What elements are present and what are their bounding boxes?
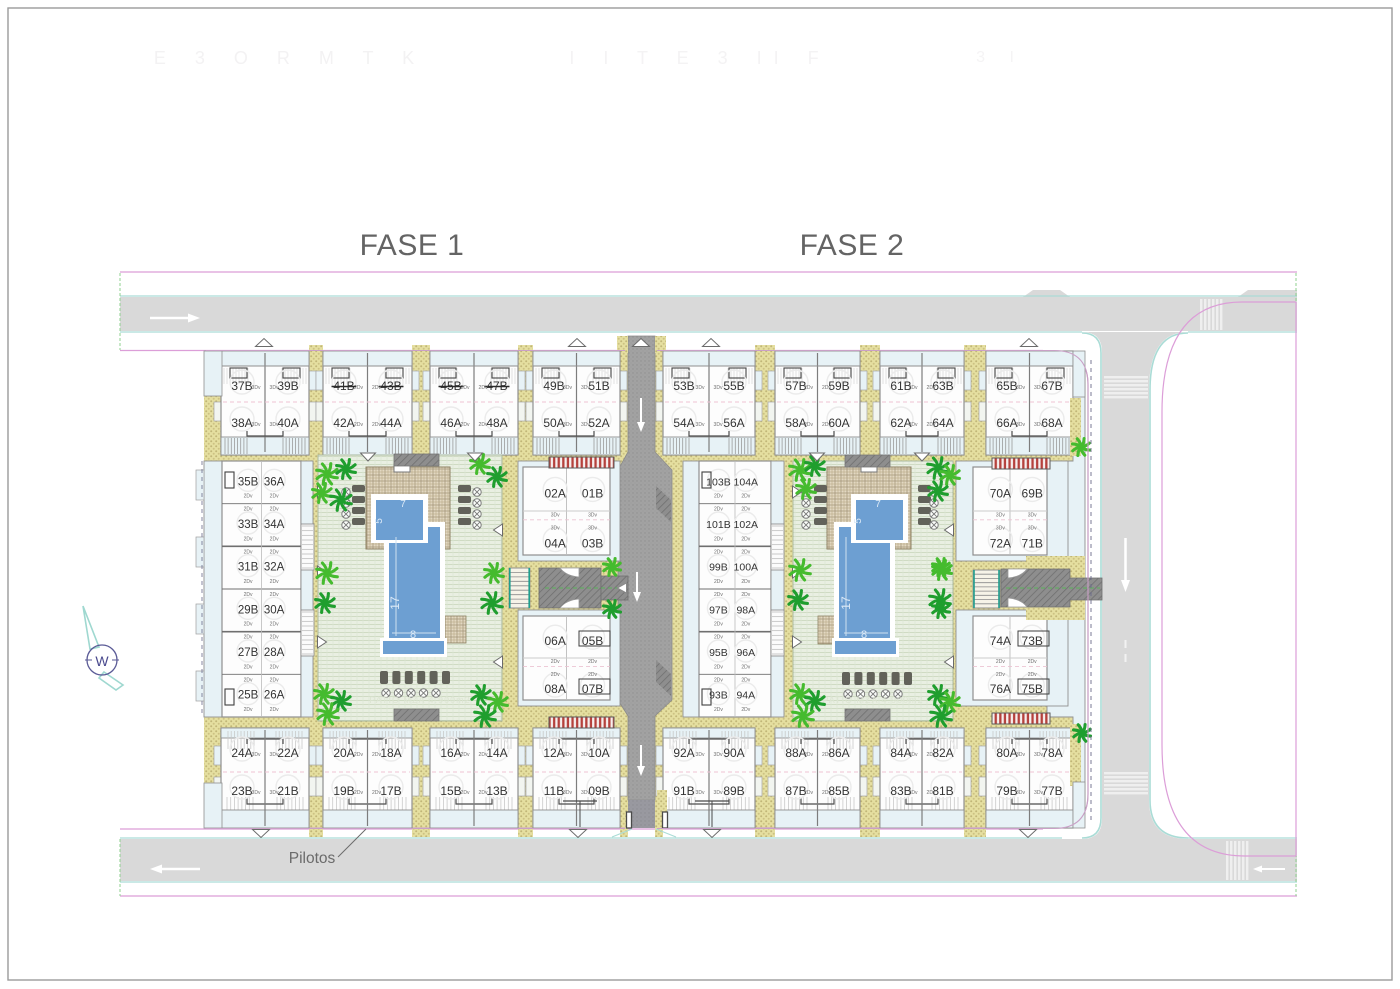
svg-text:2Dv: 2Dv <box>551 659 560 665</box>
svg-text:2Dv: 2Dv <box>354 385 363 391</box>
svg-text:42A: 42A <box>333 416 354 430</box>
svg-text:2Dv: 2Dv <box>270 494 279 500</box>
svg-text:2Dv: 2Dv <box>741 707 750 713</box>
svg-text:3Dv: 3Dv <box>696 752 705 758</box>
svg-text:3Dv: 3Dv <box>714 385 723 391</box>
svg-text:2Dv: 2Dv <box>927 790 936 796</box>
svg-text:81B: 81B <box>932 784 953 798</box>
svg-text:3Dv: 3Dv <box>996 525 1005 531</box>
svg-text:3Dv: 3Dv <box>563 752 572 758</box>
svg-text:3Dv: 3Dv <box>563 385 572 391</box>
svg-text:2Dv: 2Dv <box>714 622 723 628</box>
svg-text:3Dv: 3Dv <box>270 385 279 391</box>
svg-text:2Dv: 2Dv <box>741 579 750 585</box>
svg-text:63B: 63B <box>932 379 953 393</box>
svg-text:19B: 19B <box>333 784 354 798</box>
svg-text:30A: 30A <box>264 604 285 616</box>
svg-text:86A: 86A <box>828 746 849 760</box>
svg-text:3Dv: 3Dv <box>581 752 590 758</box>
svg-text:2Dv: 2Dv <box>804 422 813 428</box>
svg-text:80A: 80A <box>996 746 1017 760</box>
svg-text:3Dv: 3Dv <box>581 790 590 796</box>
svg-text:11B: 11B <box>544 784 564 798</box>
svg-text:3Dv: 3Dv <box>1034 752 1043 758</box>
svg-text:2Dv: 2Dv <box>479 752 488 758</box>
svg-text:08A: 08A <box>545 682 566 696</box>
svg-text:17: 17 <box>839 596 853 610</box>
svg-text:3Dv: 3Dv <box>1034 422 1043 428</box>
svg-text:28A: 28A <box>264 647 285 659</box>
svg-text:3Dv: 3Dv <box>563 790 572 796</box>
svg-text:3Dv: 3Dv <box>270 790 279 796</box>
svg-text:3Dv: 3Dv <box>996 512 1005 518</box>
svg-text:76A: 76A <box>990 682 1011 696</box>
svg-text:2Dv: 2Dv <box>551 672 560 678</box>
svg-text:3Dv: 3Dv <box>1028 512 1037 518</box>
svg-text:24A: 24A <box>231 746 252 760</box>
svg-text:3Dv: 3Dv <box>252 790 261 796</box>
svg-text:34A: 34A <box>264 519 285 531</box>
svg-text:67B: 67B <box>1041 379 1062 393</box>
svg-text:69B: 69B <box>1022 486 1043 500</box>
svg-text:2Dv: 2Dv <box>461 385 470 391</box>
svg-text:97B: 97B <box>709 604 728 616</box>
svg-text:3Dv: 3Dv <box>1016 385 1025 391</box>
svg-text:7: 7 <box>875 499 881 510</box>
svg-text:72A: 72A <box>990 537 1011 551</box>
svg-text:2Dv: 2Dv <box>1028 672 1037 678</box>
svg-text:8: 8 <box>410 629 416 641</box>
svg-text:2Dv: 2Dv <box>804 790 813 796</box>
svg-text:2Dv: 2Dv <box>354 790 363 796</box>
svg-text:2Dv: 2Dv <box>804 752 813 758</box>
svg-text:5: 5 <box>853 518 864 524</box>
svg-text:48A: 48A <box>486 416 507 430</box>
svg-text:17B: 17B <box>380 784 401 798</box>
svg-text:2Dv: 2Dv <box>479 422 488 428</box>
svg-text:104A: 104A <box>734 476 759 488</box>
svg-text:2Dv: 2Dv <box>244 622 253 628</box>
svg-text:2Dv: 2Dv <box>822 422 831 428</box>
svg-text:2Dv: 2Dv <box>270 536 279 542</box>
svg-text:I I T E 3 II F: I I T E 3 II F <box>569 48 830 68</box>
svg-text:25B: 25B <box>238 690 259 702</box>
svg-text:3Dv: 3Dv <box>588 512 597 518</box>
svg-text:96A: 96A <box>736 647 755 659</box>
svg-text:8: 8 <box>861 629 867 641</box>
svg-text:3Dv: 3Dv <box>588 525 597 531</box>
svg-text:89B: 89B <box>723 784 744 798</box>
svg-text:3Dv: 3Dv <box>551 525 560 531</box>
svg-text:10A: 10A <box>588 746 609 760</box>
svg-text:02A: 02A <box>545 486 566 500</box>
svg-text:2Dv: 2Dv <box>372 752 381 758</box>
svg-text:2Dv: 2Dv <box>741 664 750 670</box>
svg-text:29B: 29B <box>238 604 259 616</box>
svg-text:2Dv: 2Dv <box>822 752 831 758</box>
svg-text:20A: 20A <box>333 746 354 760</box>
svg-text:2Dv: 2Dv <box>244 536 253 542</box>
svg-text:3Dv: 3Dv <box>270 752 279 758</box>
svg-text:2Dv: 2Dv <box>588 672 597 678</box>
svg-text:2Dv: 2Dv <box>996 659 1005 665</box>
svg-text:17: 17 <box>388 596 402 610</box>
svg-text:2Dv: 2Dv <box>244 579 253 585</box>
svg-text:2Dv: 2Dv <box>741 494 750 500</box>
svg-text:33B: 33B <box>238 519 259 531</box>
svg-text:3Dv: 3Dv <box>581 422 590 428</box>
svg-text:3Dv: 3Dv <box>714 422 723 428</box>
svg-text:99B: 99B <box>709 562 728 574</box>
svg-text:65B: 65B <box>996 379 1017 393</box>
svg-text:59B: 59B <box>828 379 849 393</box>
svg-text:31B: 31B <box>238 562 259 574</box>
svg-text:44A: 44A <box>380 416 401 430</box>
svg-text:78A: 78A <box>1041 746 1062 760</box>
svg-text:3Dv: 3Dv <box>563 422 572 428</box>
svg-text:37B: 37B <box>231 379 252 393</box>
svg-text:PATIO MZA 4.900m2: PATIO MZA 4.900m2 <box>369 695 470 705</box>
svg-text:3Dv: 3Dv <box>1016 752 1025 758</box>
svg-text:FASE 1: FASE 1 <box>360 229 465 262</box>
svg-text:7: 7 <box>400 499 406 510</box>
svg-text:3Dv: 3Dv <box>714 790 723 796</box>
svg-text:2Dv: 2Dv <box>909 752 918 758</box>
svg-text:Pilotos: Pilotos <box>289 850 336 867</box>
svg-text:3Dv: 3Dv <box>1034 385 1043 391</box>
svg-text:85B: 85B <box>828 784 849 798</box>
svg-text:3Dv: 3Dv <box>270 422 279 428</box>
svg-text:2Dv: 2Dv <box>822 790 831 796</box>
svg-text:2Dv: 2Dv <box>909 385 918 391</box>
svg-text:3Dv: 3Dv <box>252 385 261 391</box>
svg-text:79B: 79B <box>996 784 1017 798</box>
svg-text:03B: 03B <box>582 537 603 551</box>
svg-text:2Dv: 2Dv <box>714 707 723 713</box>
svg-text:21B: 21B <box>277 784 298 798</box>
svg-text:PATIO MZA 4.900m2: PATIO MZA 4.900m2 <box>822 695 923 705</box>
svg-text:2Dv: 2Dv <box>354 422 363 428</box>
svg-text:102A: 102A <box>734 519 759 531</box>
svg-text:3 I: 3 I <box>976 49 1024 66</box>
svg-text:103B: 103B <box>706 476 731 488</box>
svg-text:92A: 92A <box>673 746 694 760</box>
svg-text:55B: 55B <box>723 379 744 393</box>
svg-text:35B: 35B <box>238 476 259 488</box>
svg-text:23B: 23B <box>231 784 252 798</box>
svg-text:13B: 13B <box>486 784 507 798</box>
svg-text:91B: 91B <box>673 784 694 798</box>
svg-text:01B: 01B <box>582 486 603 500</box>
svg-text:2Dv: 2Dv <box>714 494 723 500</box>
svg-text:98A: 98A <box>736 604 755 616</box>
svg-text:3Dv: 3Dv <box>696 790 705 796</box>
svg-text:3Dv: 3Dv <box>252 422 261 428</box>
svg-text:2Dv: 2Dv <box>244 707 253 713</box>
svg-text:5: 5 <box>374 518 385 524</box>
svg-text:2Dv: 2Dv <box>479 385 488 391</box>
svg-text:2Dv: 2Dv <box>270 664 279 670</box>
svg-text:2Dv: 2Dv <box>461 752 470 758</box>
svg-text:2Dv: 2Dv <box>244 494 253 500</box>
svg-text:2Dv: 2Dv <box>372 790 381 796</box>
svg-text:2Dv: 2Dv <box>270 707 279 713</box>
svg-text:2Dv: 2Dv <box>270 622 279 628</box>
svg-text:3Dv: 3Dv <box>551 512 560 518</box>
svg-text:54A: 54A <box>673 416 694 430</box>
svg-text:70A: 70A <box>990 486 1011 500</box>
svg-text:FASE 2: FASE 2 <box>800 229 905 262</box>
svg-text:2Dv: 2Dv <box>927 752 936 758</box>
svg-text:2Dv: 2Dv <box>804 385 813 391</box>
svg-text:2Dv: 2Dv <box>372 422 381 428</box>
svg-text:50A: 50A <box>543 416 564 430</box>
svg-text:15B: 15B <box>440 784 461 798</box>
svg-text:100A: 100A <box>734 562 759 574</box>
svg-text:14A: 14A <box>486 746 507 760</box>
svg-text:2Dv: 2Dv <box>909 422 918 428</box>
svg-text:09B: 09B <box>588 784 609 798</box>
svg-text:51B: 51B <box>588 379 609 393</box>
svg-text:94A: 94A <box>736 690 755 702</box>
svg-text:38A: 38A <box>231 416 252 430</box>
svg-text:74A: 74A <box>990 634 1011 648</box>
svg-text:39B: 39B <box>277 379 298 393</box>
svg-text:2Dv: 2Dv <box>461 422 470 428</box>
svg-text:2Dv: 2Dv <box>372 385 381 391</box>
svg-text:26A: 26A <box>264 690 285 702</box>
svg-text:3Dv: 3Dv <box>1034 790 1043 796</box>
svg-text:04A: 04A <box>545 537 566 551</box>
svg-text:66A: 66A <box>996 416 1017 430</box>
svg-text:93B: 93B <box>709 690 728 702</box>
svg-text:3Dv: 3Dv <box>696 385 705 391</box>
svg-text:40A: 40A <box>277 416 298 430</box>
svg-text:3Dv: 3Dv <box>714 752 723 758</box>
svg-text:2Dv: 2Dv <box>244 664 253 670</box>
svg-text:2Dv: 2Dv <box>588 659 597 665</box>
svg-text:71B: 71B <box>1022 537 1043 551</box>
svg-text:2Dv: 2Dv <box>461 790 470 796</box>
svg-text:101B: 101B <box>706 519 731 531</box>
svg-text:32A: 32A <box>264 562 285 574</box>
svg-text:2Dv: 2Dv <box>270 579 279 585</box>
svg-text:64A: 64A <box>932 416 953 430</box>
svg-text:95B: 95B <box>709 647 728 659</box>
svg-text:2Dv: 2Dv <box>927 422 936 428</box>
svg-text:2Dv: 2Dv <box>1028 659 1037 665</box>
svg-text:3Dv: 3Dv <box>252 752 261 758</box>
svg-text:3Dv: 3Dv <box>696 422 705 428</box>
svg-text:46A: 46A <box>440 416 461 430</box>
svg-text:27B: 27B <box>238 647 259 659</box>
svg-text:53B: 53B <box>673 379 694 393</box>
svg-text:3Dv: 3Dv <box>1016 790 1025 796</box>
svg-text:2Dv: 2Dv <box>909 790 918 796</box>
svg-text:82A: 82A <box>932 746 953 760</box>
svg-text:52A: 52A <box>588 416 609 430</box>
svg-text:3Dv: 3Dv <box>581 385 590 391</box>
svg-text:16A: 16A <box>440 746 461 760</box>
svg-text:2Dv: 2Dv <box>714 664 723 670</box>
svg-text:3Dv: 3Dv <box>1016 422 1025 428</box>
svg-text:18A: 18A <box>380 746 401 760</box>
svg-text:06A: 06A <box>545 634 566 648</box>
svg-text:3Dv: 3Dv <box>1028 525 1037 531</box>
svg-text:90A: 90A <box>723 746 744 760</box>
svg-text:2Dv: 2Dv <box>741 622 750 628</box>
svg-text:2Dv: 2Dv <box>996 672 1005 678</box>
svg-text:49B: 49B <box>543 379 564 393</box>
svg-text:60A: 60A <box>828 416 849 430</box>
svg-text:36A: 36A <box>264 476 285 488</box>
svg-text:W: W <box>95 653 109 669</box>
svg-text:2Dv: 2Dv <box>741 536 750 542</box>
svg-text:77B: 77B <box>1041 784 1062 798</box>
svg-text:56A: 56A <box>723 416 744 430</box>
svg-text:2Dv: 2Dv <box>927 385 936 391</box>
svg-text:2Dv: 2Dv <box>354 752 363 758</box>
svg-text:2Dv: 2Dv <box>822 385 831 391</box>
svg-text:22A: 22A <box>277 746 298 760</box>
svg-text:2Dv: 2Dv <box>714 579 723 585</box>
svg-text:12A: 12A <box>543 746 564 760</box>
svg-text:2Dv: 2Dv <box>479 790 488 796</box>
svg-text:68A: 68A <box>1041 416 1062 430</box>
svg-text:E 3 O R M T K: E 3 O R M T K <box>154 48 426 68</box>
svg-text:2Dv: 2Dv <box>714 536 723 542</box>
